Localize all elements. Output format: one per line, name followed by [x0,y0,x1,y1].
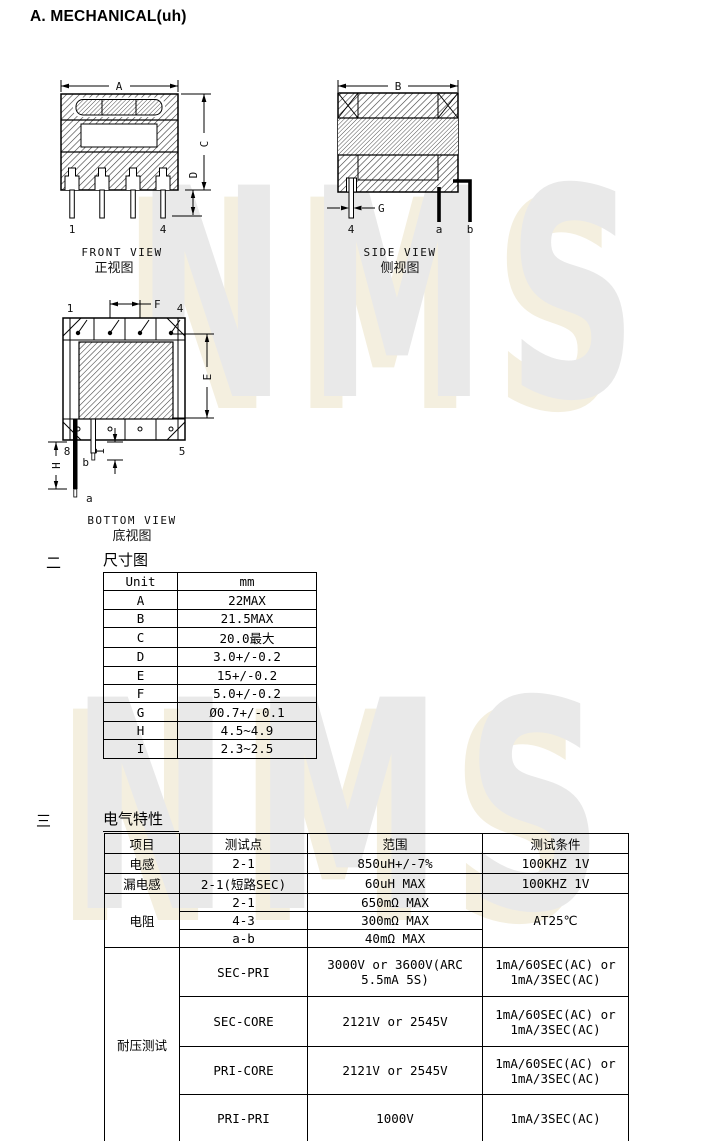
bottom-view-title: BOTTOM VIEW [87,514,176,527]
side-view-drawing: B G 4 a b SIDE VIEW [320,75,495,280]
elec-range-cell: 40mΩ MAX [308,930,483,948]
datasheet-page: NMS NMS A. MECHANICAL(uh) A [0,0,701,1141]
bottom-pin-label-5: 5 [179,445,186,458]
elec-cond-cell: 1mA/60SEC(AC) or 1mA/3SEC(AC) [483,997,629,1047]
dim-value-cell: 20.0最大 [178,628,317,648]
elec-col-item: 项目 [105,834,180,854]
front-view-title-zh: 正视图 [94,261,133,276]
dim-label-a: A [116,80,123,93]
table-row: SEC-CORE 2121V or 2545V 1mA/60SEC(AC) or… [105,997,629,1047]
side-view-title-zh: 侧视图 [380,261,419,276]
page-title: A. MECHANICAL(uh) [30,8,187,26]
dim-label-e: E [201,374,214,381]
table-row: C20.0最大 [104,628,317,648]
bottom-view-drawing: 1 4 F [40,292,230,547]
elec-range-cell: 3000V or 3600V(ARC 5.5mA 5S) [308,948,483,997]
side-lead-label-a: a [436,223,443,236]
table-row: F5.0+/-0.2 [104,684,317,702]
dim-value-cell: 3.0+/-0.2 [178,648,317,666]
dim-col-mm: mm [178,573,317,591]
dim-value-cell: 4.5~4.9 [178,721,317,739]
dim-value-cell: 21.5MAX [178,609,317,627]
dim-name-cell: G [104,703,178,721]
elec-cond-cell: 100KHZ 1V [483,854,629,874]
side-view-title: SIDE VIEW [363,246,436,259]
front-pin-label-4: 4 [160,223,167,236]
dim-name-cell: I [104,740,178,758]
bottom-pin-label-8: 8 [64,445,71,458]
elec-range-cell: 650mΩ MAX [308,894,483,912]
front-view-title: FRONT VIEW [81,246,162,259]
dim-name-cell: A [104,591,178,609]
elec-point-cell: a-b [180,930,308,948]
elec-cond-cell: 100KHZ 1V [483,874,629,894]
section-marker-3: 三 [36,810,51,831]
elec-cond-cell: 1mA/60SEC(AC) or 1mA/3SEC(AC) [483,948,629,997]
bottom-pin-label-1: 1 [67,302,74,315]
elec-range-cell: 2121V or 2545V [308,1047,483,1095]
bottom-pin-label-4: 4 [177,302,184,315]
elec-range-cell: 1000V [308,1095,483,1141]
front-pin-label-1: 1 [69,223,76,236]
table-row: A22MAX [104,591,317,609]
elec-cond-cell: AT25℃ [483,894,629,948]
elec-item-cell: 漏电感 [105,874,180,894]
elec-point-cell: 2-1 [180,854,308,874]
dim-name-cell: D [104,648,178,666]
elec-point-cell: 2-1(短路SEC) [180,874,308,894]
front-body [61,94,178,190]
bottom-body [63,318,185,440]
dim-value-cell: 2.3~2.5 [178,740,317,758]
elec-item-cell: 电感 [105,854,180,874]
elec-point-cell: SEC-CORE [180,997,308,1047]
electrical-section-title: 电气特性 [103,808,179,832]
dim-label-h: H [50,462,63,469]
table-row: Unit mm [104,573,317,591]
dim-value-cell: Ø0.7+/-0.1 [178,703,317,721]
elec-point-cell: 4-3 [180,912,308,930]
elec-range-cell: 850uH+/-7% [308,854,483,874]
side-pin-4 [349,178,354,218]
table-row: I2.3~2.5 [104,740,317,758]
dim-d-arrow [172,190,202,216]
dim-name-cell: F [104,684,178,702]
dim-value-cell: 15+/-0.2 [178,666,317,684]
table-row: 项目 测试点 范围 测试条件 [105,834,629,854]
elec-point-cell: SEC-PRI [180,948,308,997]
dim-col-unit: Unit [104,573,178,591]
dim-name-cell: B [104,609,178,627]
elec-item-cell: 电阻 [105,894,180,948]
dim-label-g: G [378,202,385,215]
bottom-lead-label-a: a [86,492,93,505]
elec-col-test-point: 测试点 [180,834,308,854]
table-row: 耐压测试 SEC-PRI 3000V or 3600V(ARC 5.5mA 5S… [105,948,629,997]
table-row: PRI-PRI 1000V 1mA/3SEC(AC) [105,1095,629,1141]
dim-name-cell: H [104,721,178,739]
front-view-drawing: A 1 4 C [40,75,220,280]
elec-col-condition: 测试条件 [483,834,629,854]
dimensions-table: Unit mm A22MAX B21.5MAX C20.0最大 D3.0+/-0… [103,572,317,759]
elec-point-cell: 2-1 [180,894,308,912]
table-row: GØ0.7+/-0.1 [104,703,317,721]
table-row: B21.5MAX [104,609,317,627]
table-row: 电感 2-1 850uH+/-7% 100KHZ 1V [105,854,629,874]
dim-label-i: I [94,448,107,455]
bottom-view-title-zh: 底视图 [112,528,151,544]
electrical-table: 项目 测试点 范围 测试条件 电感 2-1 850uH+/-7% 100KHZ … [104,833,629,1141]
dim-value-cell: 5.0+/-0.2 [178,684,317,702]
section-marker-2: 二 [46,552,61,573]
elec-item-cell: 耐压测试 [105,948,180,1141]
elec-cond-cell: 1mA/3SEC(AC) [483,1095,629,1141]
side-lead-label-b: b [467,223,474,236]
dim-name-cell: E [104,666,178,684]
dim-label-f: F [154,298,161,311]
table-row: D3.0+/-0.2 [104,648,317,666]
table-row: E15+/-0.2 [104,666,317,684]
elec-point-cell: PRI-CORE [180,1047,308,1095]
side-body [338,93,458,192]
table-row: PRI-CORE 2121V or 2545V 1mA/60SEC(AC) or… [105,1047,629,1095]
front-pins [70,190,166,218]
dim-label-b: B [395,80,402,93]
bottom-lead-label-b: b [82,456,89,469]
bottom-lead-a [73,419,78,497]
table-row: H4.5~4.9 [104,721,317,739]
dim-name-cell: C [104,628,178,648]
dimensions-section-title: 尺寸图 [103,549,170,573]
elec-cond-cell: 1mA/60SEC(AC) or 1mA/3SEC(AC) [483,1047,629,1095]
elec-range-cell: 2121V or 2545V [308,997,483,1047]
table-row: 电阻 2-1 650mΩ MAX AT25℃ [105,894,629,912]
dim-label-d: D [187,172,200,179]
dim-value-cell: 22MAX [178,591,317,609]
elec-col-range: 范围 [308,834,483,854]
elec-range-cell: 300mΩ MAX [308,912,483,930]
elec-point-cell: PRI-PRI [180,1095,308,1141]
dim-label-c: C [198,141,211,148]
elec-range-cell: 60uH MAX [308,874,483,894]
table-row: 漏电感 2-1(短路SEC) 60uH MAX 100KHZ 1V [105,874,629,894]
side-pin-label-4: 4 [348,223,355,236]
